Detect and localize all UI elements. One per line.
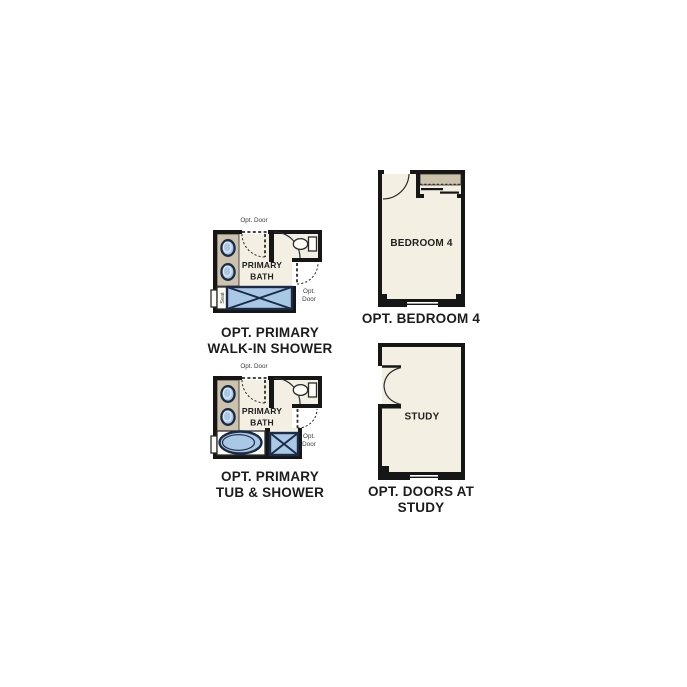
window-glass-line [407,304,438,305]
toilet [293,237,316,251]
plan-bedroom-4: BEDROOM 4 [370,166,475,316]
window [407,302,438,307]
wall-top-left [213,230,242,234]
opt-door-side-label-line2: Door [302,441,316,448]
toilet-tank [309,383,317,397]
caption-line: OPT. PRIMARY [172,469,368,485]
shower-seat: Seat [217,287,227,309]
room-label: STUDY [405,412,440,423]
shower [270,433,298,455]
wall-top-left [213,376,242,380]
caption-line: OPT. DOORS AT [323,484,519,500]
opt-door-side-label-line2: Door [302,296,316,303]
plan-study: STUDY [370,339,475,489]
wall-stub-toilet [269,376,274,408]
room-label: BEDROOM 4 [390,238,453,249]
toilet-bowl [293,239,307,250]
toilet-bowl [293,385,307,396]
opt-door-side-label-line1: Opt. [303,433,315,440]
wall-corner-block [456,294,465,307]
wall-right [461,343,465,480]
closet-wall-stub [416,194,424,198]
wall-left-upper [378,343,382,366]
room-label-line1: PRIMARY [242,406,282,416]
door-swing-arc-dashed [297,263,318,284]
door-swing-arc-dashed [298,409,318,428]
sink [221,240,234,256]
caption-line: STUDY [323,500,519,516]
closet-shelf [420,174,461,185]
wall-left [378,170,382,307]
window [410,475,438,480]
opt-door-top-label: Opt. Door [240,363,267,370]
sink [221,264,234,280]
wall-toilet-bottom [292,404,322,408]
wall-right [461,170,465,307]
sink [221,409,234,425]
floorplan-sheet: Opt. Door [0,0,687,687]
caption-line: OPT. PRIMARY [172,325,368,341]
wall-stub-toilet [269,230,274,262]
window-glass-line [410,477,438,478]
sink [221,386,234,402]
closet-wall-stub [457,194,465,198]
wall-top [378,343,465,347]
closet-bypass-door [421,188,443,190]
opt-door-side-label-line1: Opt. [303,288,315,295]
wall-toilet-right [318,230,322,262]
opt-door-top-label: Opt. Door [240,217,267,224]
walk-in-shower [227,287,292,309]
caption-line: OPT. BEDROOM 4 [323,311,519,327]
wall-niche [211,290,217,307]
wall-stub-bottom [378,404,401,409]
seat-label: Seat [220,292,226,304]
wall-toilet-bottom [292,258,322,262]
wall-top-right [410,170,465,174]
toilet-tank [309,237,317,251]
wall-corner-block [378,466,389,480]
caption-bedroom-4: OPT. BEDROOM 4 [323,311,519,327]
plan-walk-in-shower: Opt. Door [205,206,335,318]
bathtub [217,431,265,455]
caption-study: OPT. DOORS AT STUDY [323,484,519,516]
optional-door-side: Opt. Door [297,263,318,303]
toilet [293,383,316,397]
plan-tub-shower: Opt. Door [205,352,335,464]
room-label-line2: BATH [250,418,274,428]
wall-niche [211,436,217,453]
closet-wall-left [416,174,420,197]
closet-bypass-door [440,192,459,194]
wall-corner-block [378,294,387,307]
room-label-line1: PRIMARY [242,260,282,270]
wall-toilet-right [318,376,322,408]
room-label-line2: BATH [250,272,274,282]
